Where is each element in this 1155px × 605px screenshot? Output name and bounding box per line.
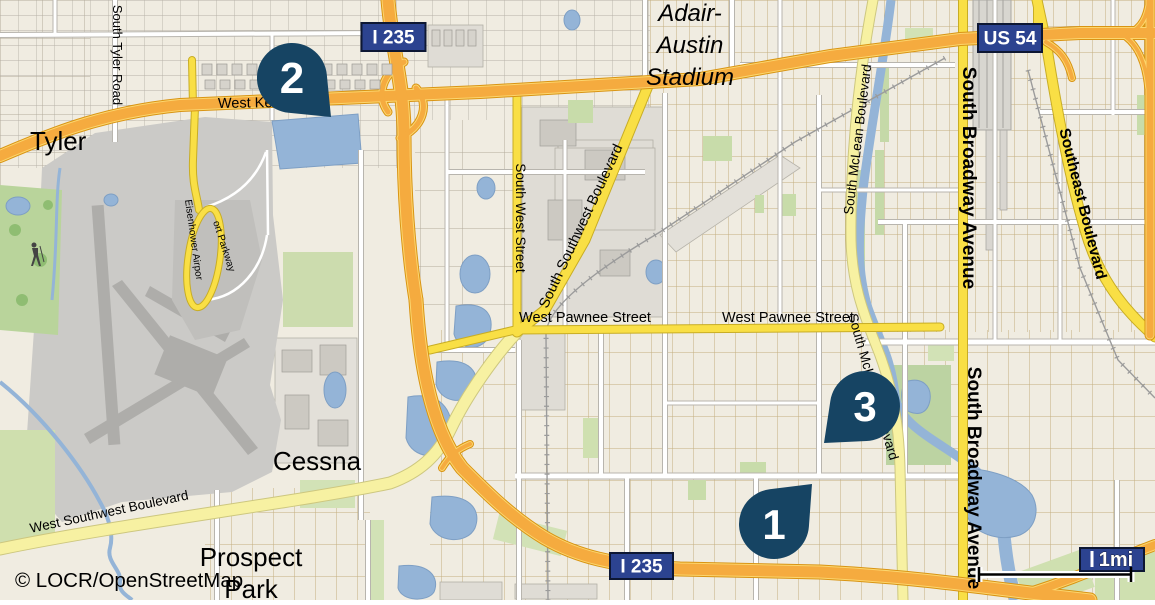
svg-text:South West Street: South West Street xyxy=(513,163,528,273)
svg-text:Stadium: Stadium xyxy=(646,64,734,91)
svg-text:Adair-: Adair- xyxy=(656,0,722,27)
svg-text:3: 3 xyxy=(853,383,876,430)
svg-text:South Broadway Avenue: South Broadway Avenue xyxy=(963,367,984,589)
svg-text:West Pawnee Street: West Pawnee Street xyxy=(722,310,854,326)
svg-text:I 235: I 235 xyxy=(620,557,663,578)
svg-text:US 54: US 54 xyxy=(984,29,1037,50)
svg-text:1: 1 xyxy=(762,501,785,548)
svg-text:South Tyler Road: South Tyler Road xyxy=(110,5,125,105)
svg-text:Tyler: Tyler xyxy=(30,126,87,156)
svg-text:West Pawnee Street: West Pawnee Street xyxy=(519,310,651,326)
svg-text:© LOCR/OpenStreetMap: © LOCR/OpenStreetMap xyxy=(15,569,243,592)
svg-text:Austin: Austin xyxy=(655,32,724,59)
svg-text:2: 2 xyxy=(280,54,304,103)
svg-text:South Broadway Avenue: South Broadway Avenue xyxy=(958,67,979,289)
svg-text:1mi: 1mi xyxy=(1099,549,1133,571)
svg-text:I 235: I 235 xyxy=(372,28,415,49)
svg-text:Prospect: Prospect xyxy=(200,542,303,572)
svg-text:Cessna: Cessna xyxy=(273,446,362,476)
